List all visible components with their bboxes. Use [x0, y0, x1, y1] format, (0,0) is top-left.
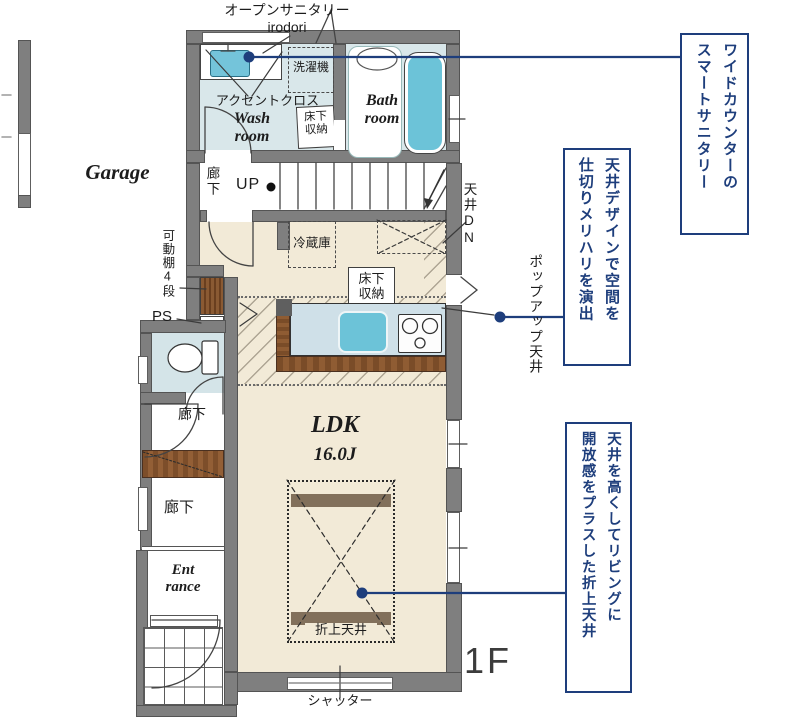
ceiling-down-label: 天井DN — [461, 182, 477, 247]
up-label: UP — [236, 176, 260, 194]
bath-window — [449, 95, 460, 143]
garage-wall-bottom — [18, 195, 31, 208]
folded-ceiling-beam-top — [291, 494, 391, 507]
underfloor-kitchen-label: 床下 収納 — [348, 272, 395, 302]
ldk-size-label: 16.0J — [290, 444, 380, 466]
garage-label: Garage — [70, 160, 165, 184]
hall-window — [138, 487, 148, 531]
entrance-step — [150, 615, 218, 627]
accent-cloth-label: アクセントクロス — [205, 94, 330, 109]
mid-wall-left — [186, 150, 205, 163]
annotation-smart-sanitary: ワイドカウンターの スマートサニタリー — [680, 33, 749, 235]
popup-ceiling-label: ポップアップ天井 — [528, 254, 544, 374]
ldk-right-wall-3 — [446, 468, 462, 512]
fridge-label: 冷蔵庫 — [288, 236, 336, 250]
open-sanitary-label: オープンサニタリー — [222, 2, 352, 18]
porch-right-wall — [224, 672, 238, 705]
garage-wall-top — [18, 40, 31, 135]
kitchen-wall-block — [276, 299, 292, 316]
hall-lower-label: 廊下 — [164, 499, 194, 516]
ps-label: PS — [152, 308, 172, 325]
shoe-cabinet — [142, 450, 224, 478]
up-start-dot — [267, 183, 276, 192]
niche-top-wall — [186, 265, 224, 277]
underfloor-wash-label: 床下 収納 — [297, 110, 334, 138]
floor-tag: 1F — [464, 640, 512, 681]
entrance-label: Ent rance — [148, 562, 218, 597]
ldk-right-wall-2 — [446, 305, 462, 420]
shutter-label: シャッター — [295, 694, 385, 709]
under-stairs-wall-left — [200, 210, 207, 222]
hall-entrance-step — [142, 546, 224, 551]
kitchen-sink — [338, 311, 388, 353]
hall-stairs-label: 廊下 — [204, 166, 220, 197]
toilet-floor — [152, 333, 224, 393]
stair-direction-arrow — [424, 170, 444, 209]
toilet-bottom-wall — [140, 392, 186, 404]
left-wall-top — [186, 44, 200, 163]
porch-bottom-wall — [136, 705, 237, 717]
dot-popup — [495, 312, 506, 323]
popup-door-opening — [448, 275, 460, 305]
irodori-label: irodori — [222, 19, 352, 35]
washer-label: 洗濯機 — [288, 61, 334, 75]
kitchen-wood-bottom — [276, 356, 446, 372]
folded-ceiling-label: 折上天井 — [305, 623, 377, 638]
wash-room-label: Wash room — [213, 110, 291, 147]
niche-left-wall — [186, 277, 200, 320]
hall-mid-label: 廊下 — [178, 406, 206, 422]
movable-shelf — [200, 277, 224, 315]
ldk-right-wall-1 — [446, 163, 462, 275]
ldk-left-wall — [186, 163, 200, 277]
stove — [398, 314, 442, 353]
floorplan: オープンサニタリー irodori Garage アクセントクロス 洗濯機 Wa… — [0, 0, 790, 726]
bath-entry-gap — [334, 120, 345, 150]
annotation-folded-ceiling: 天井を高くしてリビングに 開放感をプラスした折上天井 — [565, 422, 632, 693]
ldk-label: LDK — [290, 412, 380, 440]
popup-door-leaf — [461, 277, 477, 303]
stair-treads — [280, 163, 446, 209]
toilet-window — [138, 356, 148, 384]
annotation-ceiling-design: 天井デザインで空間を 仕切りメリハリを演出 — [563, 148, 631, 366]
shutter-window — [287, 677, 393, 690]
wash-sink — [210, 50, 250, 77]
movable-shelf-label: 可動棚4段 — [160, 229, 174, 298]
main-divider-wall — [224, 277, 238, 672]
ldk-window-2 — [447, 512, 460, 583]
bath-room-label: Bath room — [350, 92, 414, 129]
ldk-window-1 — [447, 420, 460, 468]
garage-window — [18, 133, 31, 197]
porch-tiles — [143, 627, 223, 705]
ceiling-down-box — [377, 220, 446, 254]
garage-ticks — [2, 95, 11, 137]
